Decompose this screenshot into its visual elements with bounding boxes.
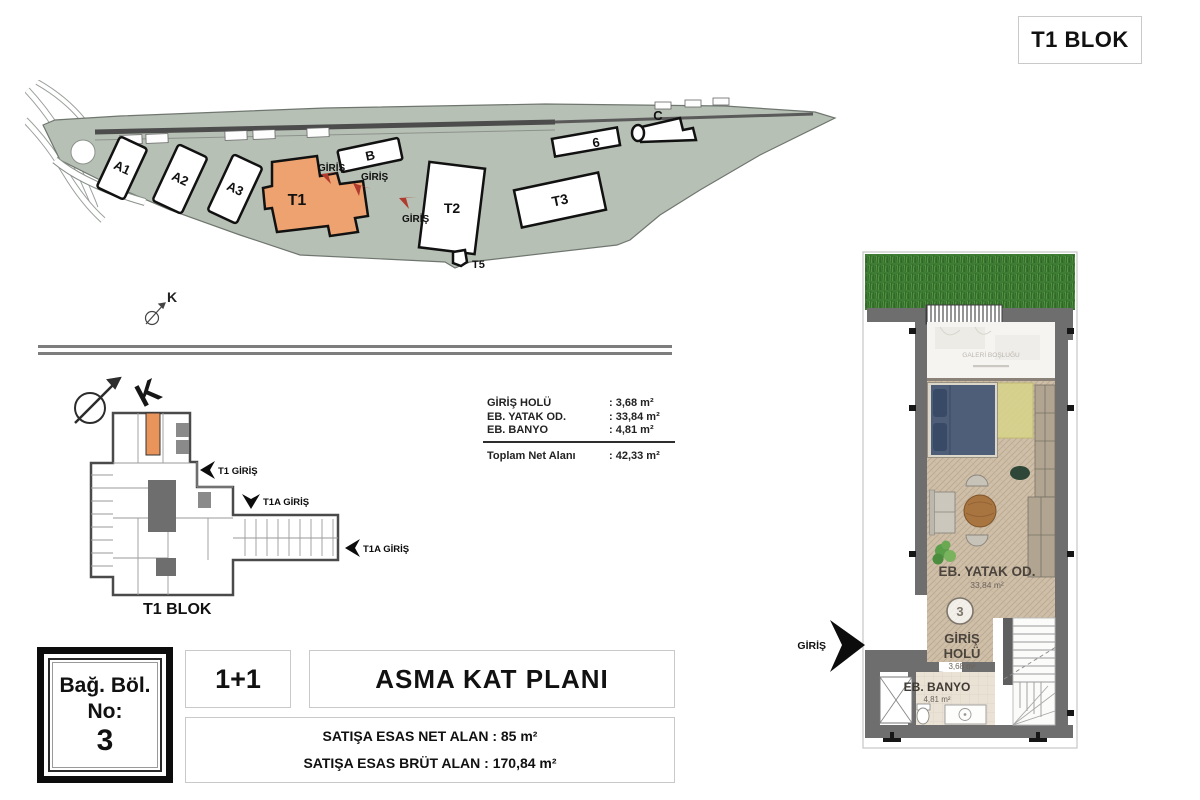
- hall-area: 3,68 m²: [948, 662, 975, 671]
- bedroom-label: EB. YATAK OD.: [938, 564, 1035, 579]
- grass-strip: [865, 254, 1075, 310]
- badge-line1: Bağ. Böl.: [59, 673, 150, 698]
- gallery-subtext-blur: [973, 365, 1009, 367]
- separator-line-bottom: [38, 352, 672, 355]
- gallery-label: GALERİ BOŞLUĞU: [962, 350, 1020, 359]
- row-value: : 33,84 m²: [609, 411, 677, 425]
- skylight-window: [926, 305, 1002, 324]
- floor-divider: [927, 378, 1055, 381]
- hall-label-2: HOLÜ: [944, 646, 981, 661]
- wall-right: [1055, 322, 1068, 738]
- wall-left: [915, 322, 927, 595]
- table-total-row: Toplam Net Alanı : 42,33 m²: [487, 450, 677, 464]
- sales-brut-area: SATIŞA ESAS BRÜT ALAN : 170,84 m²: [303, 750, 556, 777]
- unit-circle-number: 3: [956, 604, 963, 619]
- hall-label-1: GİRİŞ: [944, 631, 980, 646]
- row-name: EB. YATAK OD.: [487, 411, 609, 425]
- plan-type-label: 1+1: [215, 664, 261, 695]
- t1a-giris-label-1: T1A GİRİŞ: [263, 497, 309, 508]
- entrance-marker: GİRİŞ: [797, 620, 865, 672]
- north-arrow-site: K: [146, 289, 178, 325]
- label-t2: T2: [444, 200, 461, 216]
- key-plan-caption: T1 BLOK: [143, 601, 212, 618]
- wall-bath-top: [880, 662, 995, 672]
- row-name: EB. BANYO: [487, 424, 609, 438]
- t1-giris-label: T1 GİRİŞ: [218, 466, 258, 477]
- entrance-arrow-icon: [830, 620, 865, 672]
- total-name: Toplam Net Alanı: [487, 450, 609, 464]
- entrance-label: GİRİŞ: [797, 639, 826, 652]
- toilet: [917, 708, 929, 724]
- gallery-room: GALERİ BOŞLUĞU: [927, 322, 1055, 380]
- plan-type-box: 1+1: [185, 650, 291, 708]
- key-plan: K T1 GİRİŞ T1A GİRİŞ T1A GİRİŞ: [48, 368, 418, 620]
- label-c: C: [653, 108, 663, 123]
- desk-chair: [1010, 466, 1030, 480]
- plan-title-box: ASMA KAT PLANI: [309, 650, 675, 708]
- north-label-key: K: [129, 371, 166, 414]
- wall-bottom: [865, 725, 1073, 738]
- giris-label-2: GİRİŞ: [361, 170, 389, 183]
- area-table: GİRİŞ HOLÜ : 3,68 m² EB. YATAK OD. : 33,…: [487, 397, 677, 463]
- detail-plan: GALERİ BOŞLUĞU: [790, 245, 1090, 790]
- sales-net-area: SATIŞA ESAS NET ALAN : 85 m²: [323, 723, 538, 750]
- label-t5: T5: [472, 259, 485, 271]
- separator-line-top: [38, 345, 672, 348]
- t1-giris-arrow-icon: [200, 461, 215, 479]
- wall-stair: [1003, 618, 1013, 685]
- key-highlight-unit: [146, 413, 160, 455]
- table-row: GİRİŞ HOLÜ : 3,68 m²: [487, 397, 677, 411]
- row-value: : 4,81 m²: [609, 424, 677, 438]
- building-t5: [453, 250, 467, 266]
- table-row: EB. BANYO : 4,81 m²: [487, 424, 677, 438]
- giris-label-3: GİRİŞ: [402, 212, 430, 225]
- t1a-giris-arrow-2-icon: [345, 539, 360, 557]
- bed: [928, 383, 998, 458]
- giris-label-1: GİRİŞ: [318, 161, 346, 174]
- bathroom: EB. BANYO 4,81 m²: [880, 672, 995, 725]
- coffee-table: [964, 495, 996, 527]
- plan-title-label: ASMA KAT PLANI: [375, 664, 609, 695]
- wall-entry: [865, 650, 927, 662]
- badge-line2: No:: [88, 699, 123, 724]
- block-title: T1 BLOK: [1031, 27, 1129, 53]
- total-value: : 42,33 m²: [609, 450, 677, 464]
- north-label-site: K: [167, 289, 177, 305]
- label-t1: T1: [288, 192, 307, 209]
- table-divider: [483, 441, 675, 443]
- building-round: [632, 125, 644, 141]
- row-value: : 3,68 m²: [609, 397, 677, 411]
- bath-area: 4,81 m²: [923, 695, 950, 704]
- table-row: EB. YATAK OD. : 33,84 m²: [487, 411, 677, 425]
- unit-number-badge: Bağ. Böl. No: 3: [37, 647, 173, 783]
- site-plan: A1 A2 A3 B T1 T2 T3 6 C T5 GİRİŞ GİRİŞ G…: [25, 80, 845, 335]
- floor-plan-sheet: T1 BLOK: [0, 0, 1200, 800]
- bedroom-area: 33,84 m²: [970, 580, 1004, 590]
- unit-number-badge-inner: Bağ. Böl. No: 3: [48, 658, 162, 772]
- bath-label: EB. BANYO: [904, 680, 971, 694]
- block-title-box: T1 BLOK: [1018, 16, 1142, 64]
- sales-area-box: SATIŞA ESAS NET ALAN : 85 m² SATIŞA ESAS…: [185, 717, 675, 783]
- t1a-giris-arrow-1-icon: [242, 494, 260, 509]
- badge-number: 3: [97, 724, 114, 757]
- row-name: GİRİŞ HOLÜ: [487, 397, 609, 411]
- t1a-giris-label-2: T1A GİRİŞ: [363, 544, 409, 555]
